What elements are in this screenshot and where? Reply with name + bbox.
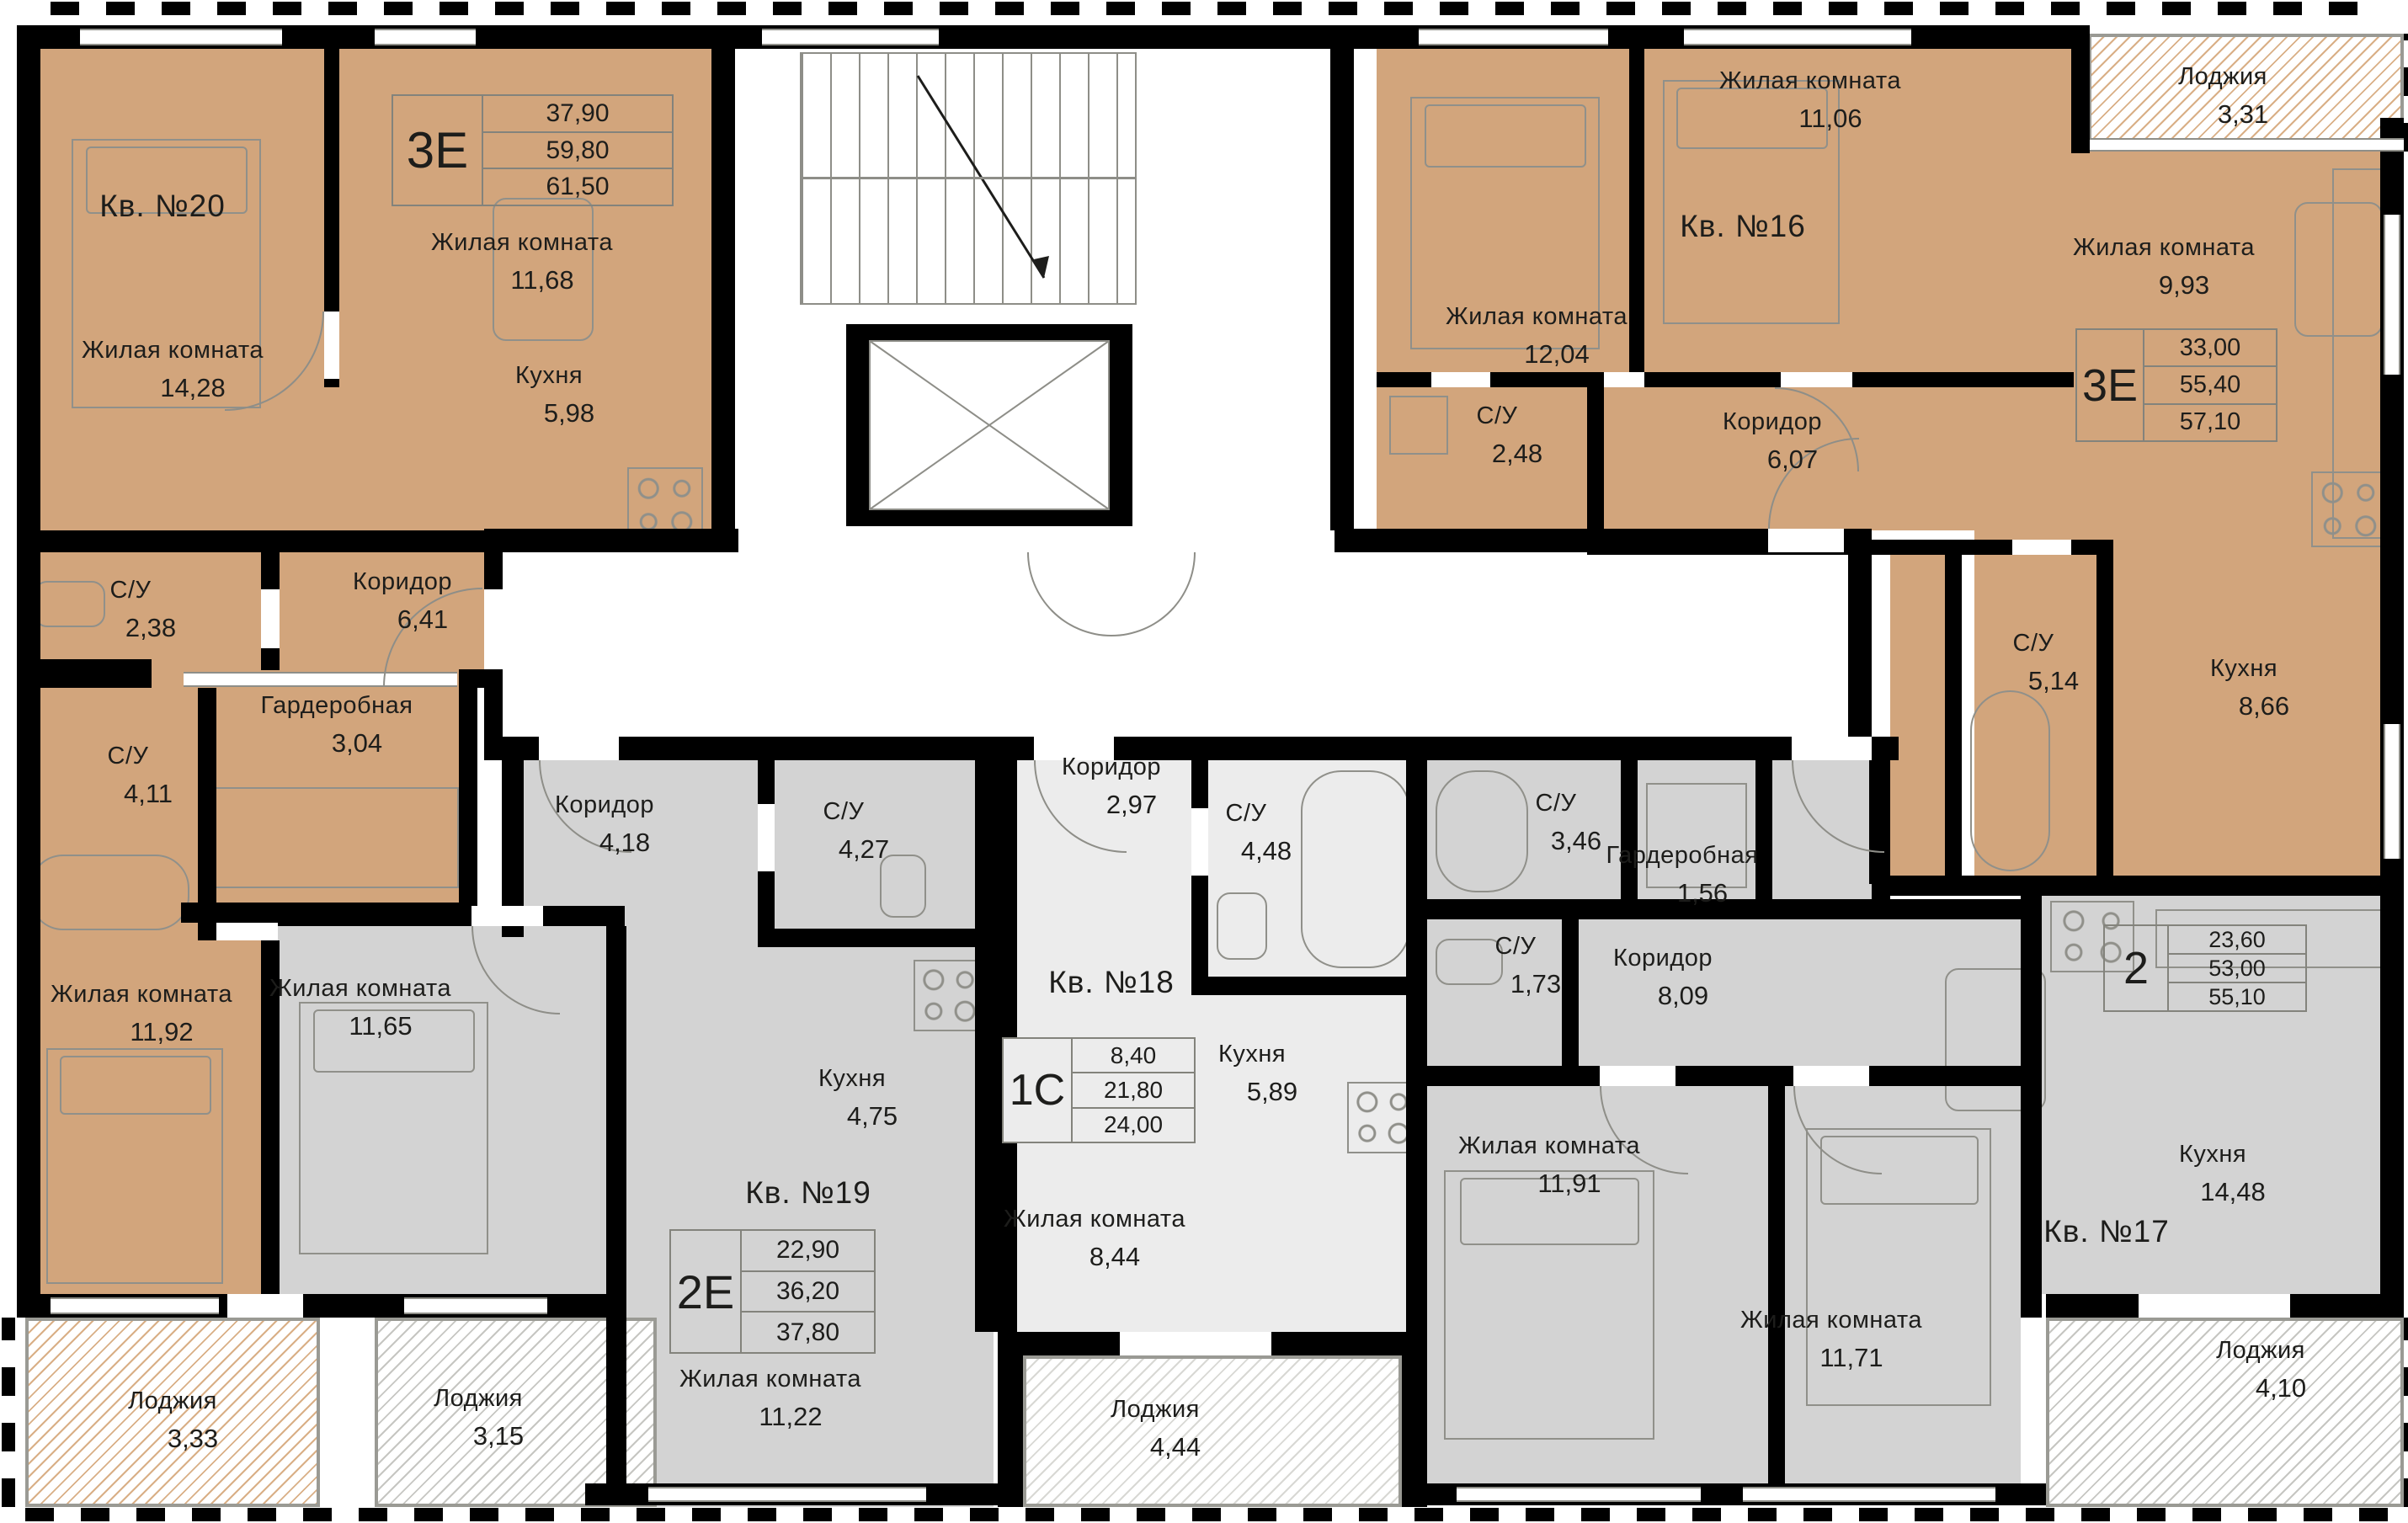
door-gap — [1120, 1332, 1271, 1355]
window — [2384, 215, 2400, 375]
room-area: 6,07 — [1743, 445, 1842, 475]
room-area: 11,91 — [1478, 1169, 1660, 1199]
room-area: 4,11 — [124, 779, 173, 809]
room-area: 3,46 — [1551, 826, 1601, 856]
room-label: Гардеробная 1,56 — [1606, 842, 1759, 908]
room-area: 3,04 — [281, 728, 434, 759]
type-block-kv20: 3Е 37,90 59,80 61,50 — [392, 94, 674, 206]
room-name: Кухня — [515, 362, 583, 390]
room-label: Коридор 4,18 — [555, 791, 654, 858]
wall-segment — [278, 906, 625, 926]
wall-segment — [1848, 529, 1872, 739]
room-area: 3,31 — [2198, 99, 2288, 130]
elevator-icon — [846, 324, 1132, 526]
toilet-icon — [34, 581, 105, 627]
area-living: 37,90 — [483, 96, 672, 131]
room-label: Жилая комната 11,68 — [431, 229, 613, 296]
room-name: Жилая комната — [1719, 67, 1901, 95]
room-label: С/У 3,46 — [1531, 790, 1581, 856]
room-name: Жилая комната — [82, 337, 264, 365]
bathtub-icon — [29, 855, 189, 930]
room-name: С/У — [1531, 790, 1581, 817]
room-label: С/У 4,11 — [104, 743, 152, 809]
window — [2090, 138, 2404, 152]
room-label: С/У 4,27 — [818, 798, 869, 865]
apartment-number-kv20: Кв. №20 — [99, 189, 226, 224]
room-name: С/У — [105, 577, 156, 604]
window — [1743, 1487, 1995, 1502]
room-name: Жилая комната — [1004, 1206, 1185, 1233]
wall-segment — [2096, 555, 2113, 884]
dashed-edge-left-bottom — [2, 1318, 15, 1507]
area-total: 37,80 — [742, 1311, 874, 1352]
area-apartment: 59,80 — [483, 131, 672, 168]
area-apartment: 53,00 — [2169, 953, 2305, 982]
room-label: Жилая комната 11,92 — [51, 981, 232, 1047]
door-gap — [1431, 372, 1490, 387]
room-name: Лоджия — [128, 1387, 217, 1415]
wall-segment — [758, 929, 994, 947]
room-label: Кухня 8,66 — [2210, 655, 2277, 722]
room-area: 9,93 — [2093, 270, 2275, 301]
room-area: 1,56 — [1627, 878, 1779, 908]
room-area: 4,44 — [1131, 1432, 1220, 1462]
room-label: Кухня 5,98 — [515, 362, 583, 429]
room-label: Лоджия 3,33 — [128, 1387, 217, 1454]
door-gap — [1793, 1066, 1869, 1086]
apartment-type: 3Е — [2077, 330, 2144, 440]
pillow-icon — [1425, 104, 1586, 168]
room-name: Жилая комната — [1446, 303, 1628, 331]
room-label: Кухня 4,75 — [818, 1065, 886, 1132]
door-gap — [484, 589, 503, 669]
room-area: 6,41 — [373, 604, 472, 635]
wall-segment — [711, 49, 735, 530]
dashed-edge-top — [51, 2, 2374, 15]
room-area: 2,48 — [1492, 439, 1542, 469]
room-area: 2,38 — [125, 613, 176, 643]
apartment-number-kv18: Кв. №18 — [1048, 965, 1175, 1000]
door-gap — [2012, 540, 2071, 555]
room-area: 11,92 — [71, 1017, 253, 1047]
floor-plan: Кв. №20 Кв. №16 Кв. №19 Кв. №18 Кв. №17 … — [0, 0, 2408, 1523]
room-area: 5,89 — [1239, 1077, 1306, 1107]
room-label: С/У 5,14 — [2008, 630, 2059, 696]
room-label: Жилая комната 8,44 — [1004, 1206, 1185, 1272]
bed-icon — [46, 1048, 223, 1284]
room-label: Жилая комната 11,65 — [269, 975, 451, 1041]
window — [2384, 724, 2400, 859]
door-gap — [324, 312, 339, 379]
room-area: 5,14 — [2028, 666, 2079, 696]
door-arc — [1111, 552, 1196, 636]
apartment-type: 2Е — [671, 1231, 742, 1352]
area-total: 24,00 — [1073, 1107, 1194, 1142]
area-living: 33,00 — [2144, 330, 2276, 365]
wall-segment — [1330, 49, 1354, 530]
wall-segment — [2071, 34, 2090, 153]
door-gap — [227, 1294, 303, 1318]
room-label: С/У 4,48 — [1221, 800, 1271, 866]
room-label: Жилая комната 11,22 — [679, 1366, 861, 1432]
room-area: 14,48 — [2199, 1177, 2267, 1207]
pillow-icon — [60, 1056, 210, 1115]
room-label: Жилая комната 12,04 — [1446, 303, 1628, 370]
room-name: Кухня — [2179, 1141, 2246, 1169]
window — [648, 1487, 926, 1502]
apartment-number-kv19: Кв. №19 — [745, 1175, 871, 1211]
room-area: 3,33 — [148, 1424, 237, 1454]
room-label: Гардеробная 3,04 — [261, 692, 413, 759]
apartment-number-kv16: Кв. №16 — [1680, 209, 1806, 244]
door-arc — [1027, 552, 1111, 636]
room-label: Жилая комната 14,28 — [82, 337, 264, 403]
window — [80, 29, 282, 45]
kv18-loggia — [1023, 1355, 1402, 1507]
room-label: С/У 2,38 — [105, 577, 156, 643]
room-area: 5,98 — [535, 398, 603, 429]
apartment-type: 2 — [2105, 926, 2169, 1010]
window — [404, 1297, 547, 1314]
room-area: 1,73 — [1510, 969, 1561, 999]
room-label: Жилая комната 11,91 — [1458, 1132, 1640, 1199]
door-gap — [1781, 372, 1852, 387]
wall-segment — [1406, 737, 1427, 1483]
staircase-arrow-icon — [892, 67, 1095, 295]
wall-segment — [2021, 884, 2042, 1318]
dashed-edge-bottom — [25, 1508, 2404, 1521]
room-name: Лоджия — [1111, 1396, 1200, 1424]
wall-segment — [1191, 977, 1427, 995]
room-name: Жилая комната — [679, 1366, 861, 1393]
door-gap — [1191, 808, 1208, 876]
room-label: Коридор 6,41 — [353, 568, 452, 635]
room-label: Коридор 2,97 — [1062, 754, 1161, 820]
door-gap — [1792, 737, 1872, 760]
room-area: 8,09 — [1633, 981, 1733, 1011]
room-name: Лоджия — [2216, 1337, 2305, 1365]
wall-segment — [484, 529, 738, 552]
wall-segment — [1587, 372, 1604, 555]
room-area: 11,68 — [451, 265, 633, 296]
area-apartment: 21,80 — [1073, 1072, 1194, 1106]
apartment-number-kv17: Кв. №17 — [2043, 1214, 2170, 1249]
door-gap — [471, 906, 543, 926]
room-label: Лоджия 3,31 — [2178, 63, 2267, 130]
door-gap — [261, 589, 280, 648]
room-area: 4,27 — [839, 834, 889, 865]
room-name: Кухня — [1218, 1041, 1286, 1068]
room-area: 3,15 — [454, 1421, 543, 1451]
wall-segment — [1890, 876, 2404, 896]
type-block-kv16: 3Е 33,00 55,40 57,10 — [2075, 328, 2277, 442]
staircase-divider — [800, 177, 1137, 179]
room-name: С/У — [818, 798, 869, 826]
room-name: Лоджия — [434, 1385, 523, 1413]
room-name: С/У — [104, 743, 152, 770]
room-area: 4,75 — [839, 1101, 906, 1132]
room-name: Коридор — [555, 791, 654, 819]
window — [1684, 29, 1911, 45]
room-label: Лоджия 3,15 — [434, 1385, 523, 1451]
bed-icon — [1444, 1170, 1654, 1440]
area-living: 22,90 — [742, 1231, 874, 1270]
type-block-kv18: 1С 8,40 21,80 24,00 — [1002, 1037, 1196, 1143]
room-name: Жилая комната — [51, 981, 232, 1009]
type-block-kv17: 2 23,60 53,00 55,10 — [2103, 924, 2307, 1012]
room-label: Коридор 8,09 — [1613, 945, 1713, 1011]
room-area: 8,66 — [2230, 691, 2298, 722]
room-name: Жилая комната — [2073, 234, 2255, 262]
area-living: 23,60 — [2169, 926, 2305, 953]
bathtub-icon — [1436, 770, 1528, 892]
wall-segment — [1644, 372, 2074, 387]
wardrobe-shelves-icon — [198, 787, 459, 888]
window — [51, 1297, 219, 1314]
apartment-type: 3Е — [393, 96, 483, 205]
window — [1457, 1487, 1701, 1502]
room-name: Коридор — [1062, 754, 1161, 781]
room-name: Лоджия — [2178, 63, 2267, 91]
room-name: Гардеробная — [1606, 842, 1759, 870]
apartment-type: 1С — [1004, 1039, 1073, 1142]
room-area: 4,10 — [2236, 1373, 2325, 1403]
window — [1419, 29, 1608, 45]
area-living: 8,40 — [1073, 1039, 1194, 1072]
window — [375, 29, 476, 45]
wall-segment — [1629, 49, 1644, 372]
door-gap — [2139, 1294, 2290, 1318]
room-label: Коридор 6,07 — [1723, 408, 1822, 475]
bathtub-icon — [1301, 770, 1410, 968]
room-label: С/У 1,73 — [1490, 933, 1541, 999]
area-apartment: 55,40 — [2144, 365, 2276, 402]
room-label: Кухня 5,89 — [1218, 1041, 1286, 1107]
room-label: С/У 2,48 — [1472, 402, 1522, 469]
area-total: 61,50 — [483, 168, 672, 205]
wall-segment — [1768, 1086, 1785, 1483]
door-gap — [539, 737, 619, 760]
room-area: 4,48 — [1241, 836, 1292, 866]
wall-segment — [1945, 555, 1962, 884]
room-area: 14,28 — [102, 373, 284, 403]
door-gap — [1768, 529, 1844, 552]
toilet-icon — [1217, 892, 1267, 960]
room-name: С/У — [1472, 402, 1522, 430]
room-name: Гардеробная — [261, 692, 413, 720]
room-label: Жилая комната 11,06 — [1719, 67, 1901, 134]
room-name: Коридор — [1723, 408, 1822, 436]
area-apartment: 36,20 — [742, 1270, 874, 1312]
room-label: Жилая комната 11,71 — [1740, 1307, 1922, 1373]
room-name: Коридор — [353, 568, 452, 596]
room-name: Кухня — [2210, 655, 2277, 683]
wall-segment — [17, 25, 40, 1318]
room-name: Жилая комната — [269, 975, 451, 1003]
room-label: Кухня 14,48 — [2179, 1141, 2246, 1207]
room-area: 11,71 — [1761, 1343, 1942, 1373]
room-name: С/У — [2008, 630, 2059, 658]
type-block-kv19: 2Е 22,90 36,20 37,80 — [669, 1229, 876, 1354]
area-total: 55,10 — [2169, 982, 2305, 1010]
room-label: Лоджия 4,44 — [1111, 1396, 1200, 1462]
window — [762, 29, 939, 45]
wall-segment — [1427, 1066, 2021, 1086]
room-area: 11,22 — [700, 1402, 882, 1432]
room-area: 11,65 — [290, 1011, 471, 1041]
room-label: Жилая комната 9,93 — [2073, 234, 2255, 301]
room-area: 2,97 — [1082, 790, 1181, 820]
wall-segment — [38, 659, 152, 688]
room-name: С/У — [1490, 933, 1541, 961]
door-gap — [1600, 1066, 1675, 1086]
wall-segment — [606, 926, 626, 1483]
room-name: Жилая комната — [431, 229, 613, 257]
washer-icon — [1389, 396, 1448, 455]
room-label: Лоджия 4,10 — [2216, 1337, 2305, 1403]
kv18-main-space — [998, 977, 1427, 1332]
bathtub-icon — [1970, 690, 2050, 871]
door-gap — [758, 804, 775, 871]
room-name: Коридор — [1613, 945, 1713, 972]
area-total: 57,10 — [2144, 403, 2276, 440]
room-area: 12,04 — [1466, 339, 1648, 370]
wall-segment — [1562, 919, 1579, 1066]
room-area: 11,06 — [1739, 104, 1921, 134]
room-area: 4,18 — [575, 828, 674, 858]
room-name: С/У — [1221, 800, 1271, 828]
room-name: Жилая комната — [1458, 1132, 1640, 1160]
room-name: Жилая комната — [1740, 1307, 1922, 1334]
wall-segment — [459, 688, 477, 903]
room-area: 8,44 — [1024, 1242, 1206, 1272]
room-name: Кухня — [818, 1065, 886, 1093]
